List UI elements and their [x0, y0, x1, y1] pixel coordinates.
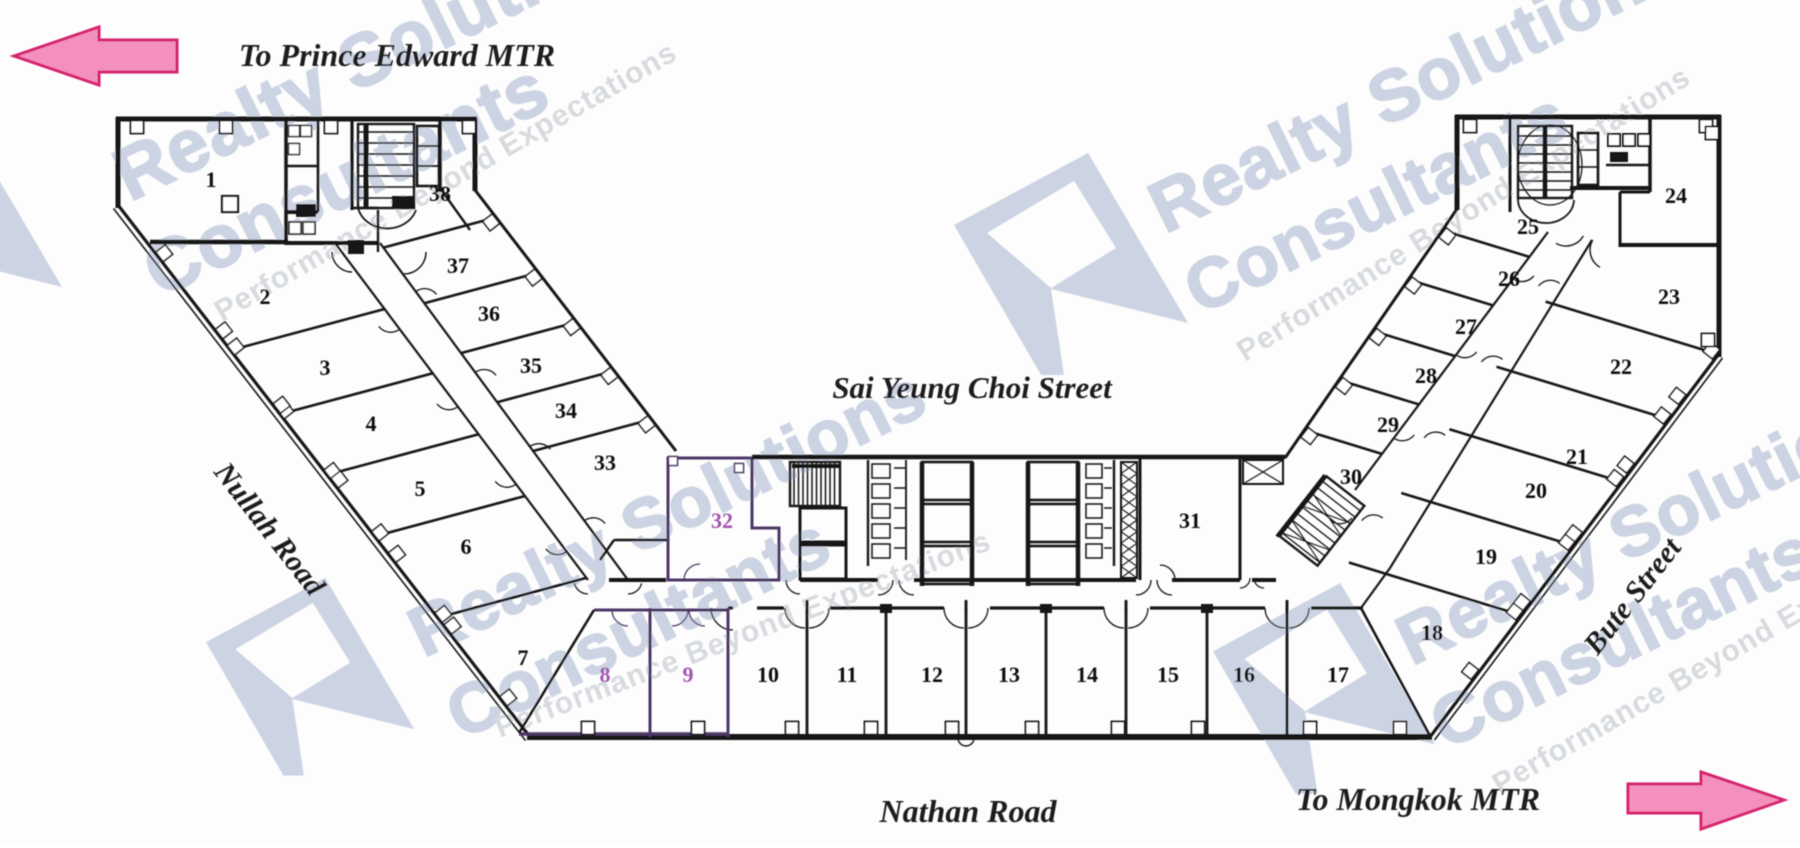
svg-text:32: 32 [711, 508, 733, 533]
svg-text:7: 7 [518, 645, 529, 670]
svg-text:33: 33 [594, 450, 616, 475]
svg-text:13: 13 [998, 662, 1020, 687]
svg-text:To Mongkok MTR: To Mongkok MTR [1296, 781, 1540, 817]
svg-text:17: 17 [1327, 662, 1349, 687]
svg-text:5: 5 [415, 476, 426, 501]
svg-text:Nathan Road: Nathan Road [879, 793, 1058, 829]
svg-text:21: 21 [1566, 444, 1588, 469]
svg-text:11: 11 [837, 662, 858, 687]
svg-text:10: 10 [757, 662, 779, 687]
svg-text:20: 20 [1525, 478, 1547, 503]
svg-text:15: 15 [1157, 662, 1179, 687]
svg-text:24: 24 [1665, 183, 1687, 208]
svg-text:30: 30 [1340, 464, 1362, 489]
svg-text:9: 9 [683, 662, 694, 687]
svg-text:22: 22 [1610, 354, 1632, 379]
svg-text:23: 23 [1658, 284, 1680, 309]
svg-text:8: 8 [600, 662, 611, 687]
svg-text:36: 36 [478, 301, 500, 326]
svg-text:26: 26 [1498, 266, 1520, 291]
svg-text:16: 16 [1233, 662, 1255, 687]
svg-text:35: 35 [520, 353, 542, 378]
svg-text:29: 29 [1377, 412, 1399, 437]
svg-text:14: 14 [1076, 662, 1098, 687]
svg-text:12: 12 [921, 662, 943, 687]
svg-text:4: 4 [366, 411, 377, 436]
svg-text:38: 38 [429, 181, 451, 206]
svg-text:18: 18 [1421, 620, 1443, 645]
svg-text:31: 31 [1179, 508, 1201, 533]
svg-text:25: 25 [1517, 214, 1539, 239]
svg-text:3: 3 [320, 355, 331, 380]
svg-text:6: 6 [461, 534, 472, 559]
svg-text:19: 19 [1475, 544, 1497, 569]
svg-text:34: 34 [555, 398, 577, 423]
svg-text:2: 2 [260, 284, 271, 309]
svg-text:To Prince Edward MTR: To Prince Edward MTR [239, 37, 555, 73]
svg-text:27: 27 [1455, 314, 1477, 339]
svg-text:28: 28 [1415, 363, 1437, 388]
svg-text:37: 37 [447, 253, 469, 278]
svg-text:1: 1 [206, 167, 217, 192]
svg-text:Sai Yeung Choi Street: Sai Yeung Choi Street [832, 370, 1113, 405]
